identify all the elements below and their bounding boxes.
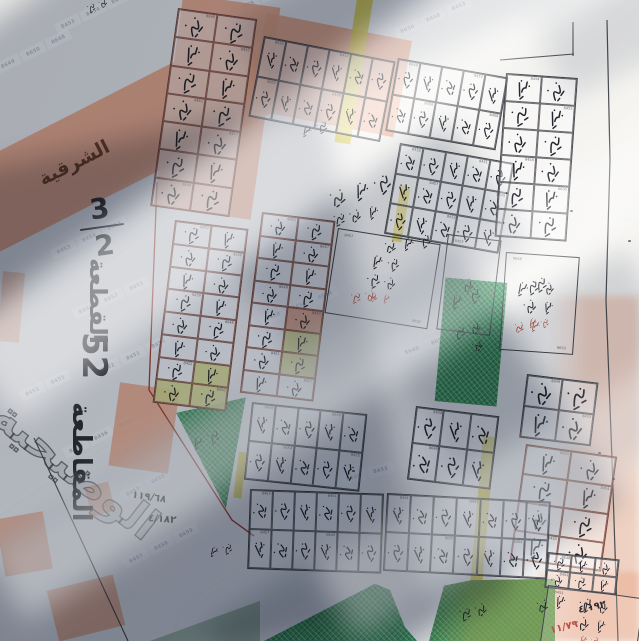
handwriting-annotation (504, 128, 535, 157)
handwriting-annotation (507, 102, 535, 130)
red-handwriting-row (577, 633, 601, 641)
plot-cell-number: 8648 (561, 555, 570, 560)
handwriting-annotation (577, 633, 590, 641)
plot-cell: 8455 (538, 103, 575, 132)
handwriting-annotation (596, 558, 615, 577)
handwriting-annotation (591, 616, 609, 634)
ink-speck (628, 240, 631, 242)
handwriting-annotation (474, 117, 499, 142)
handwriting-annotation (589, 635, 602, 641)
plot-cell-number: 8454 (531, 77, 540, 82)
plot-cell-number: 8455 (564, 106, 573, 111)
handwriting-annotation (541, 131, 569, 159)
handwriting-annotation (574, 556, 592, 574)
handwriting-row (575, 614, 609, 634)
plot-cell (501, 128, 538, 157)
plot-cell-number: 8459 (489, 113, 498, 118)
plot-cell (536, 130, 573, 159)
plot-cell: 8454 (505, 74, 542, 103)
cadastral-map-photo: 8649865086488453845484528451845584568457… (0, 0, 639, 641)
plot-cell: 8459 (473, 110, 501, 149)
handwriting-annotation (595, 575, 613, 593)
plot-cell: 8458 (499, 155, 536, 184)
plot-cell (503, 101, 540, 130)
plot-cell-number: 8452 (559, 572, 568, 577)
plot-cell-number: 8458 (525, 158, 534, 163)
